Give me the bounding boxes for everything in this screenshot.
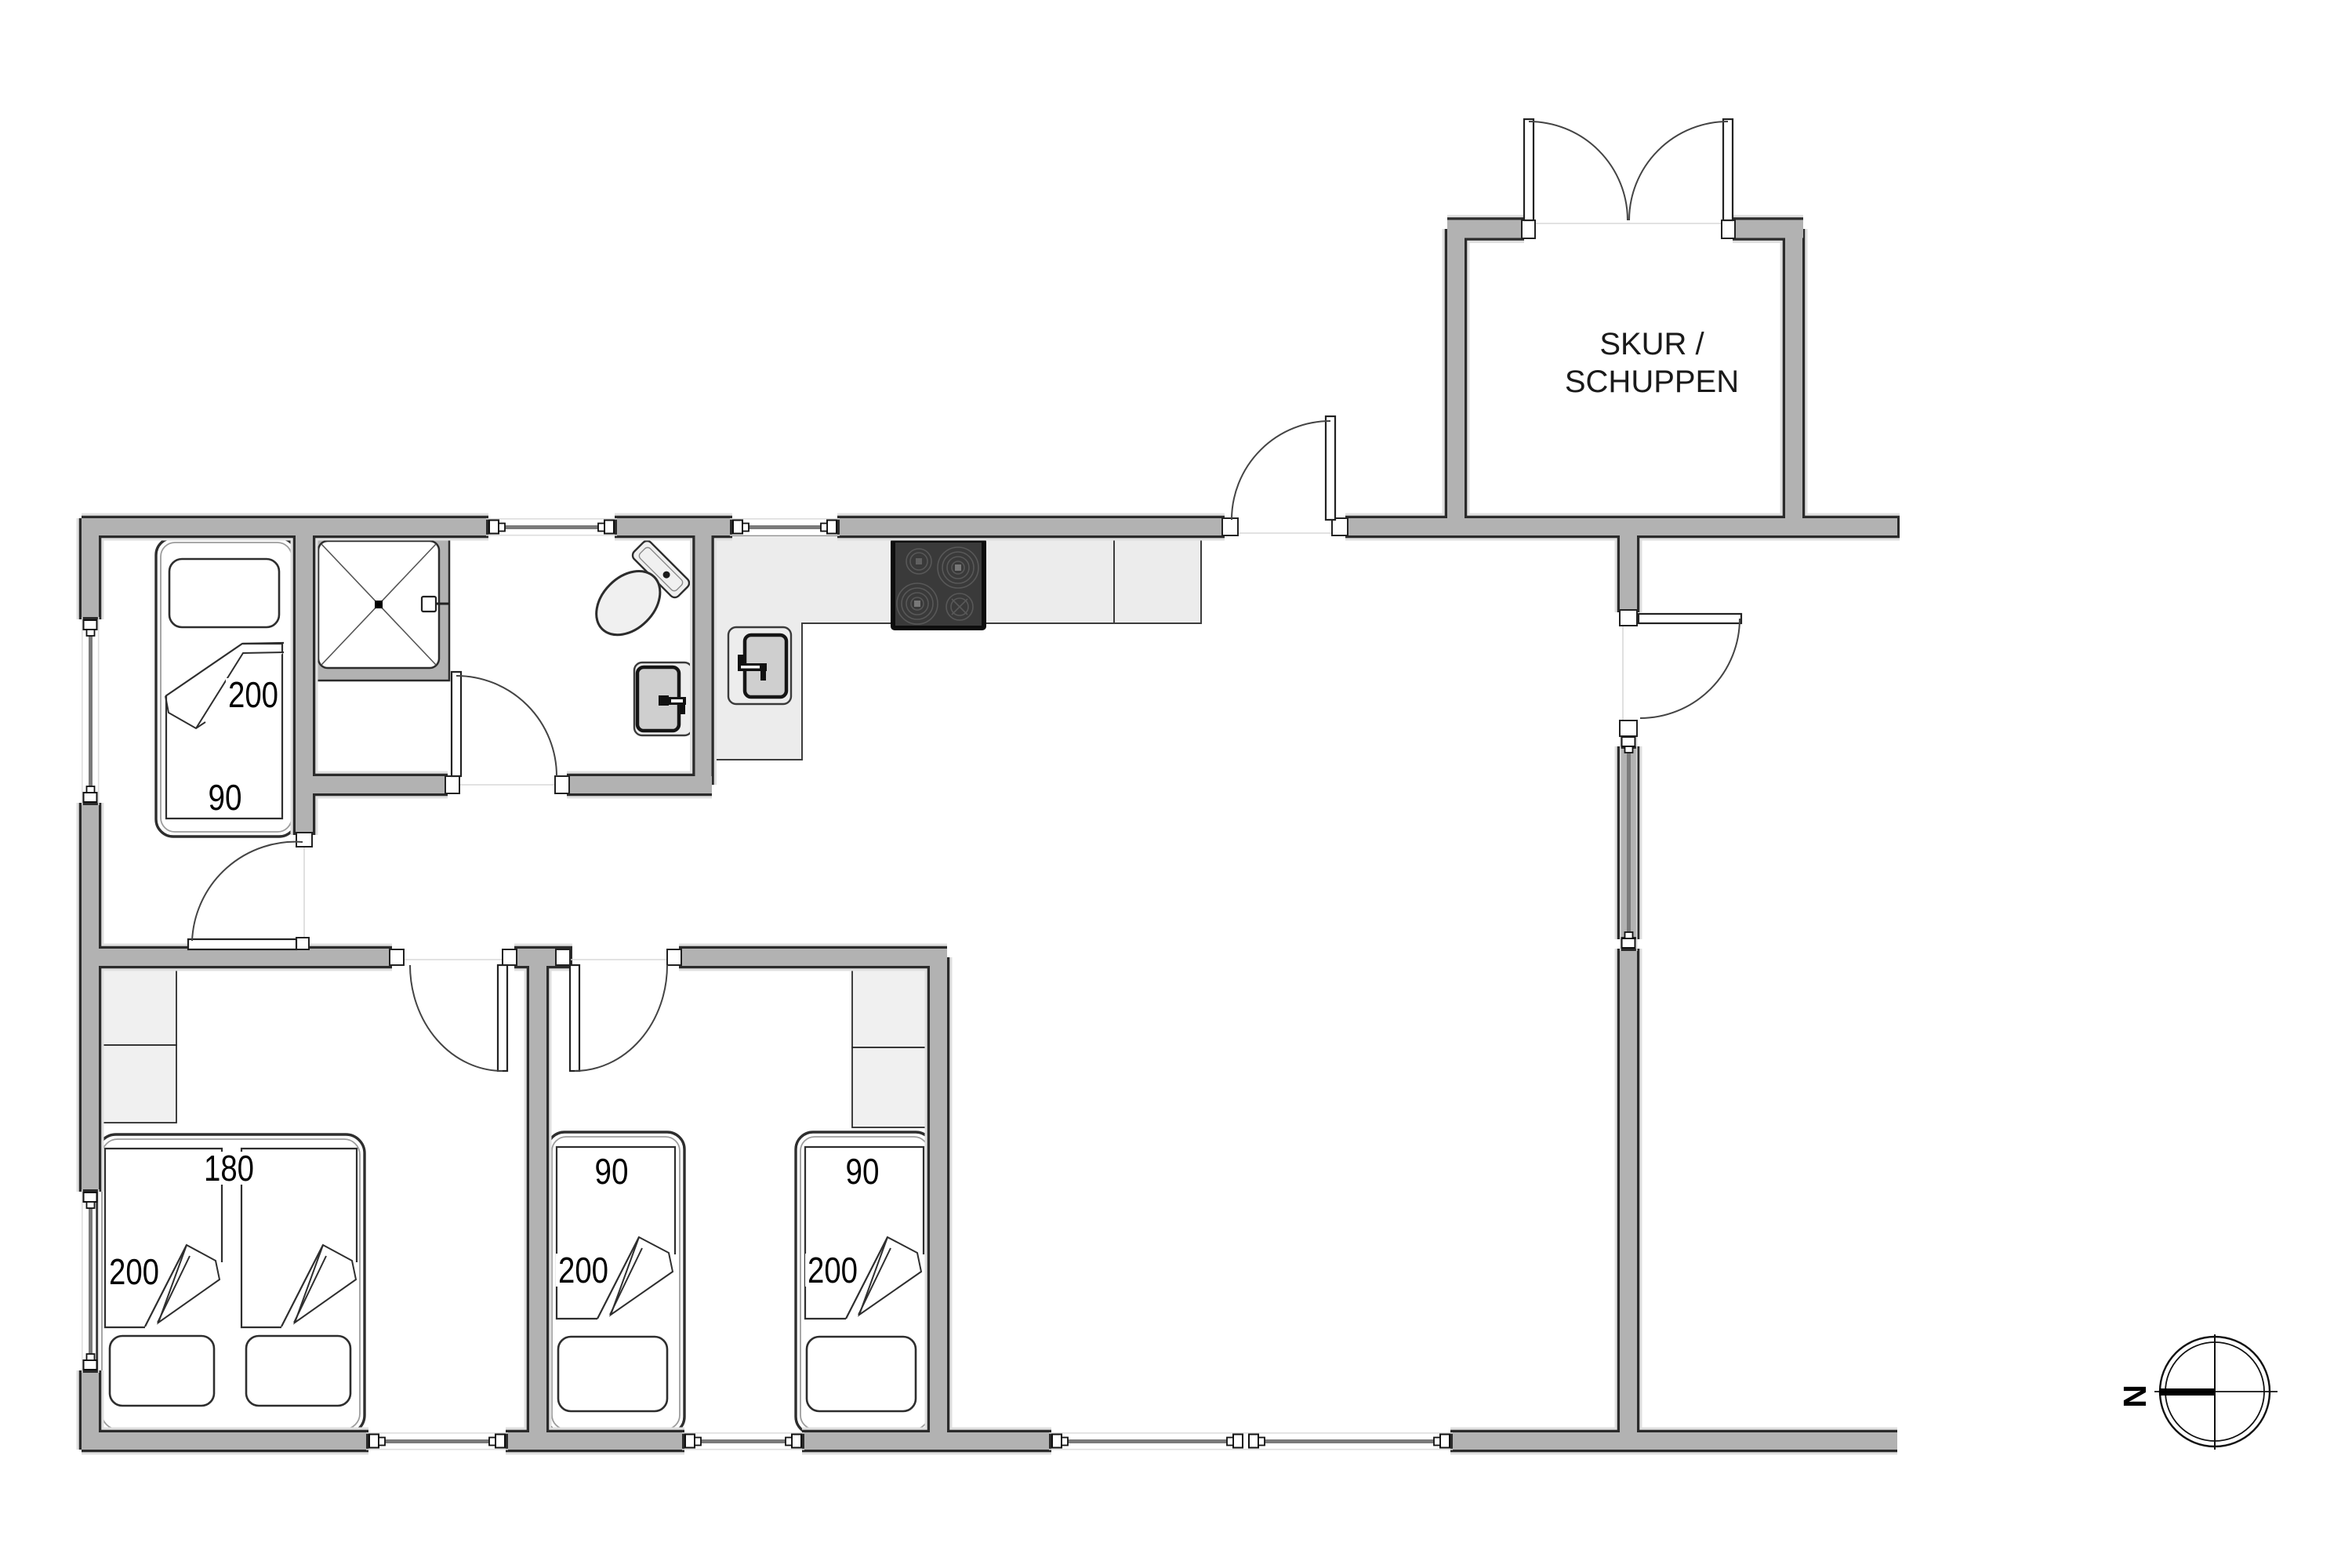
svg-text:180: 180 bbox=[204, 1148, 254, 1189]
svg-text:200: 200 bbox=[109, 1251, 159, 1292]
svg-text:200: 200 bbox=[228, 674, 278, 715]
svg-text:200: 200 bbox=[808, 1250, 858, 1290]
svg-text:SKUR /: SKUR / bbox=[1599, 327, 1704, 361]
svg-text:SCHUPPEN: SCHUPPEN bbox=[1565, 365, 1739, 399]
svg-text:90: 90 bbox=[595, 1151, 629, 1192]
svg-text:N: N bbox=[2117, 1385, 2153, 1408]
svg-text:200: 200 bbox=[558, 1250, 608, 1290]
svg-text:90: 90 bbox=[209, 777, 242, 818]
svg-text:90: 90 bbox=[846, 1151, 880, 1192]
